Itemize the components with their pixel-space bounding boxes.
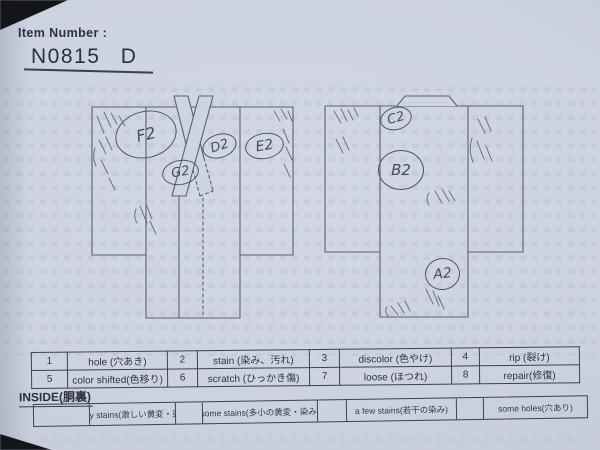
inside-check-cell-1: [34, 404, 90, 426]
inside-check-cell-3: [318, 400, 347, 421]
defect-code-4: 4: [451, 348, 479, 366]
photographed-inspection-sheet: Item Number : N0815 D F2 G2 D2 E2 C2: [0, 0, 600, 450]
back-neckline: [397, 96, 457, 106]
defect-mark-C2-label: C2: [386, 110, 406, 127]
defect-mark-B2-label: B2: [391, 163, 411, 178]
kimono-back-diagram: [325, 96, 523, 317]
inside-stamp-a-few-stains: a few stains(若干の染み): [347, 398, 457, 421]
defect-mark-E2-label: E2: [255, 138, 275, 155]
defect-code-6: 6: [167, 369, 197, 387]
defect-label-1: hole (穴あき): [67, 351, 167, 370]
inside-check-cell-4: [457, 398, 484, 419]
defect-mark-F2-label: F2: [135, 124, 158, 144]
defect-code-7: 7: [309, 367, 339, 385]
inside-check-cell-2: [176, 402, 203, 423]
defect-mark-G2-label: G2: [170, 165, 190, 181]
defect-code-2: 2: [167, 351, 197, 369]
inside-stamp-some-holes: some holes(穴あり): [484, 396, 587, 419]
defect-label-7: loose (ほつれ): [339, 366, 451, 385]
defect-mark-A2-label: A2: [433, 266, 453, 282]
defect-code-5: 5: [31, 370, 67, 388]
defect-label-2: stain (染み、汚れ): [197, 350, 309, 369]
defect-label-5: color shifted(色移り): [67, 369, 167, 388]
defect-label-8: repair(修復): [479, 365, 579, 384]
defect-code-8: 8: [451, 366, 479, 384]
defect-mark-B2: B2: [378, 150, 424, 190]
defect-label-3: discolor (色やけ): [339, 348, 451, 367]
defect-code-1: 1: [31, 352, 67, 370]
inside-stamp-some-stains: some stains(多小の黄変・染み): [203, 401, 318, 424]
inside-stamp-many-stains: many stains(激しい黄変・染み): [90, 403, 176, 425]
defect-label-6: scratch (ひっかき傷): [197, 368, 309, 387]
defect-legend-table: 1 hole (穴あき) 2 stain (染み、汚れ) 3 discolor …: [31, 346, 580, 389]
defect-label-4: rip (裂け): [479, 347, 579, 366]
defect-mark-D2-label: D2: [209, 137, 230, 155]
defect-code-3: 3: [309, 349, 339, 367]
